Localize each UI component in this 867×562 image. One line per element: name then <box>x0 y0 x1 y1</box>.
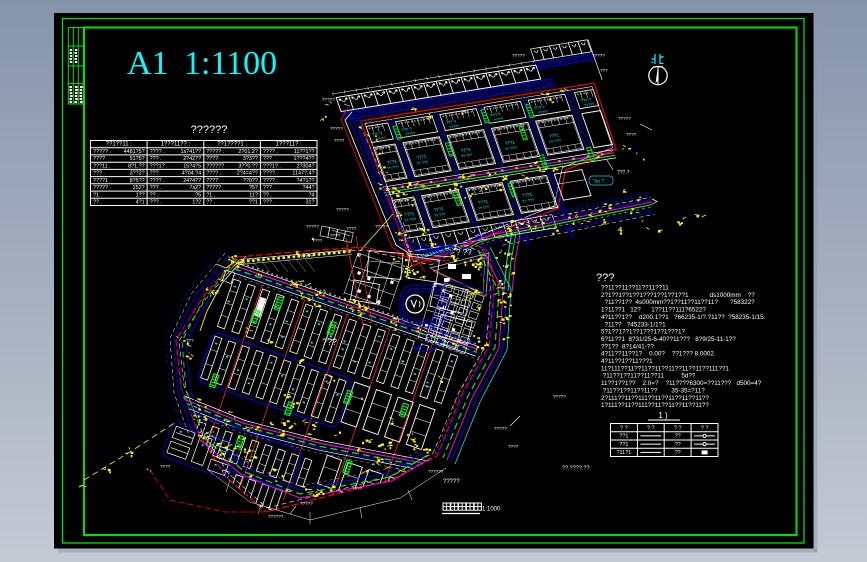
svg-text:??1: ??1 <box>619 442 628 448</box>
svg-text:????: ???? <box>626 132 637 137</box>
svg-text:1?11??1 12? 1??11??111?: 1?11??1 12? 1??11??111?6522? <box>601 307 706 314</box>
svg-text:4?11??1??11???1: 4?11??1??11???1 <box>601 358 653 365</box>
svg-text:15?4?5: 15?4?5 <box>183 163 201 169</box>
svg-text:????: ???? <box>160 464 171 469</box>
svg-text:???? .: ???? . <box>263 149 278 155</box>
svg-text:??? .: ??? . <box>263 200 275 206</box>
svg-text:????? .: ????? . <box>206 149 224 155</box>
svg-text:4?11??11??1? 0.00? ??1??: 4?11??11??1? 0.00? ??1??? 8.0002 <box>601 351 714 358</box>
svg-text:????: ???? <box>312 238 323 243</box>
svg-text:?????: ????? <box>93 185 108 191</box>
svg-text:??1?? 8?14/41-??: ??1?? 8?14/41-?? <box>601 343 654 350</box>
svg-text:??1??11 :: ??1??11 : <box>106 142 133 148</box>
svg-text:??1: ??1 <box>619 434 628 440</box>
svg-text:??? .: ??? . <box>150 156 162 162</box>
svg-text:??.????.??: ??.????.?? <box>562 466 590 472</box>
svg-text:2?111??11??111??11??11??11??11: 2?111??11??111??11??11??11??11?? <box>601 395 709 402</box>
svg-text:4?1: 4?1 <box>136 200 145 206</box>
svg-text:???? .: ???? . <box>206 171 221 177</box>
svg-text:4481?5?: 4481?5? <box>124 149 145 155</box>
svg-text:51?5?: 51?5? <box>130 156 145 162</box>
svg-text:?11??1?? 4s000mm??1??11??11??: ?11??1?? 4s000mm??1??11??11??11? ?58322? <box>601 299 755 306</box>
svg-text:4?04.?4: 4?04.?4 <box>182 171 202 177</box>
svg-text:?11??1??11??11?? 35-35=: ?11??1??11??11?? 35-35=?11? <box>601 387 705 394</box>
svg-text:?????: ????? <box>494 426 507 431</box>
svg-text:7s2?: 7s2? <box>189 185 201 191</box>
svg-text:11??1??: 11??1?? <box>294 149 315 155</box>
svg-text:?? .: ?? . <box>263 192 272 198</box>
svg-text:3??2?: 3??2? <box>130 171 145 177</box>
svg-text:??11??11??11??11??11: ??11??11??11??11??11 <box>601 285 669 292</box>
svg-text:1???11?? :: 1???11?? : <box>161 142 191 148</box>
svg-text:11?: 11? <box>249 192 258 198</box>
svg-text:? ??: ? ?? <box>456 248 472 257</box>
svg-text:? ?: ? ? <box>620 425 628 431</box>
svg-text:?1 .: ?1 . <box>206 192 215 198</box>
svg-text:???1? .: ???1? . <box>263 163 281 169</box>
svg-text:???? .: ???? . <box>263 178 278 184</box>
svg-text:?????: ????? <box>322 97 335 102</box>
svg-text:??: ?? <box>675 434 681 440</box>
svg-text:???: ??? <box>150 171 159 177</box>
svg-text:1:1000: 1:1000 <box>482 507 501 513</box>
svg-text:?????: ????? <box>512 53 525 58</box>
svg-text:?????: ????? <box>443 479 460 485</box>
svg-text:??? .: ??? . <box>150 200 162 206</box>
svg-text:5?1??1??1??1???1??1???1?: 5?1??1??1??1???1??1???1? <box>601 329 686 336</box>
svg-text:1s?41??: 1s?41?? <box>181 149 202 155</box>
svg-text:?m ?: ?m ? <box>593 179 604 185</box>
svg-text:???: ??? <box>186 338 194 343</box>
svg-text:??? .: ??? . <box>263 185 275 191</box>
svg-text:???11 .: ???11 . <box>93 163 111 169</box>
svg-text:????: ???? <box>352 486 363 491</box>
svg-text:1???4??: 1???4?? <box>294 156 315 162</box>
svg-text:1??: 1?? <box>136 192 145 198</box>
svg-text:?? .: ?? . <box>206 200 215 206</box>
svg-text:1:1100: 1:1100 <box>184 45 277 82</box>
svg-text:6?11??1 8?31/25-6-40??11???: 6?11??1 8?31/25-6-40??11??? 8?9/25-11-1?… <box>601 336 736 343</box>
svg-text:??: ?? <box>183 396 189 401</box>
svg-text:?44?: ?44? <box>303 185 315 191</box>
svg-text:24?4??: 24?4?? <box>183 178 201 184</box>
svg-text:?5: ?5 <box>195 192 201 198</box>
svg-text:8?5??: 8?5?? <box>130 178 145 184</box>
svg-text:3??0.??: 3??0.?? <box>238 163 258 169</box>
svg-text:?11??1??11??11??11 5d: ?11??1??11??11??11 5d?? <box>601 373 696 380</box>
svg-text:????: ???? <box>206 178 218 184</box>
svg-text:?????: ????? <box>306 224 319 229</box>
svg-text:11?111??11??11??11??11??11??11: 11?111??11??11??11??11??11??11??111??1 <box>601 365 729 372</box>
svg-text:? ?: ? ? <box>674 425 682 431</box>
svg-text:2?42??: 2?42?? <box>183 156 201 162</box>
svg-text:?????: ????? <box>618 116 631 121</box>
svg-text:??????: ?????? <box>191 124 228 136</box>
svg-text:????: ???? <box>334 138 345 143</box>
svg-text:2?304?: 2?304? <box>297 163 315 169</box>
svg-text:?????: ????? <box>375 224 388 229</box>
svg-text:2?4=4??: 2?4=4?? <box>237 171 258 177</box>
svg-text:?????: ????? <box>300 501 313 506</box>
svg-text:???: ??? <box>322 337 337 347</box>
svg-text:1147?.4?: 1147?.4? <box>292 171 314 177</box>
svg-text:??1????1 .: ??1????1 . <box>217 142 247 148</box>
svg-text:3?3??: 3?3?? <box>243 156 258 162</box>
svg-text:??????: ?????? <box>428 469 444 474</box>
svg-text:??: ?? <box>675 450 681 456</box>
svg-text:?5?: ?5? <box>249 185 258 191</box>
svg-text:2?1??1??1??1???1??1??1??1: 2?1??1??1??1???1??1??1??1 ds1000mm ?? <box>601 292 755 299</box>
svg-text:????.: ????. <box>263 171 277 177</box>
svg-text:?? .: ?? . <box>93 200 102 206</box>
svg-text:252?: 252? <box>133 185 145 191</box>
svg-text:????: ???? <box>346 226 357 231</box>
svg-text:???? .: ???? . <box>150 178 165 184</box>
svg-text:31?: 31? <box>306 200 315 206</box>
svg-text:???: ??? <box>600 68 608 73</box>
svg-text:? ?: ? ? <box>701 425 709 431</box>
svg-text:1???11? :: 1???11? : <box>276 142 303 148</box>
svg-text:??????: ?????? <box>268 514 284 519</box>
svg-text:??1: ??1 <box>249 200 258 206</box>
svg-text:??0??: ??0?? <box>243 178 258 184</box>
svg-text:??? .: ??? . <box>150 185 162 191</box>
svg-text:2?01.2?: 2?01.2? <box>238 149 258 155</box>
svg-text:???? .: ???? . <box>150 149 165 155</box>
svg-text:1 ): 1 ) <box>658 411 668 420</box>
svg-text:?1 .: ?1 . <box>93 192 102 198</box>
svg-text:?????: ????? <box>300 254 313 259</box>
svg-text:????: ???? <box>206 156 218 162</box>
svg-text:1?111??11??111??11??11??11??11: 1?111??11??111??11??11??11??11?? <box>601 402 709 409</box>
svg-text:?????: ????? <box>330 126 343 131</box>
svg-text:? ?: ? ? <box>647 425 655 431</box>
svg-text:???1? .: ???1? . <box>150 163 168 169</box>
svg-text:??????: ?????? <box>206 163 224 169</box>
svg-text:1?2: 1?2 <box>192 200 201 206</box>
svg-text:??: ?? <box>675 442 681 448</box>
svg-text:????: ???? <box>508 444 519 449</box>
svg-text:8?1.??: 8?1.?? <box>128 163 145 169</box>
svg-text:A1: A1 <box>127 45 169 82</box>
svg-text:?????: ????? <box>592 53 605 58</box>
svg-text:?11?? ?45233-1/1?1: ?11?? ?45233-1/1?1 <box>601 321 666 328</box>
svg-text:?4?1??: ?4?1?? <box>297 178 315 184</box>
svg-text:?????: ????? <box>553 394 566 399</box>
svg-text:??? .: ??? . <box>93 171 105 177</box>
svg-text:?????: ????? <box>206 185 221 191</box>
svg-text:4?11??1?? d200.1??1 ?6623: 4?11??1?? d200.1??1 ?66235-1/?.?11?? ?58… <box>601 314 766 321</box>
svg-text:???: ??? <box>263 156 272 162</box>
svg-text:????: ???? <box>93 156 105 162</box>
svg-text:???.?: ???.? <box>617 170 630 176</box>
svg-text:?? .: ?? . <box>150 192 159 198</box>
svg-text:?????: ????? <box>336 207 349 212</box>
svg-text:????1 .: ????1 . <box>93 178 111 184</box>
svg-text:11??1??1?? 2.0=? ?11????: 11??1??1?? 2.0=? ?11????6300=??11??? d50… <box>601 380 762 387</box>
svg-text:????: ???? <box>330 233 341 238</box>
svg-text:?11?1: ?11?1 <box>616 450 631 456</box>
svg-text:???: ??? <box>596 272 614 284</box>
svg-text:?4: ?4 <box>309 192 315 198</box>
svg-text:????? .: ????? . <box>93 149 111 155</box>
